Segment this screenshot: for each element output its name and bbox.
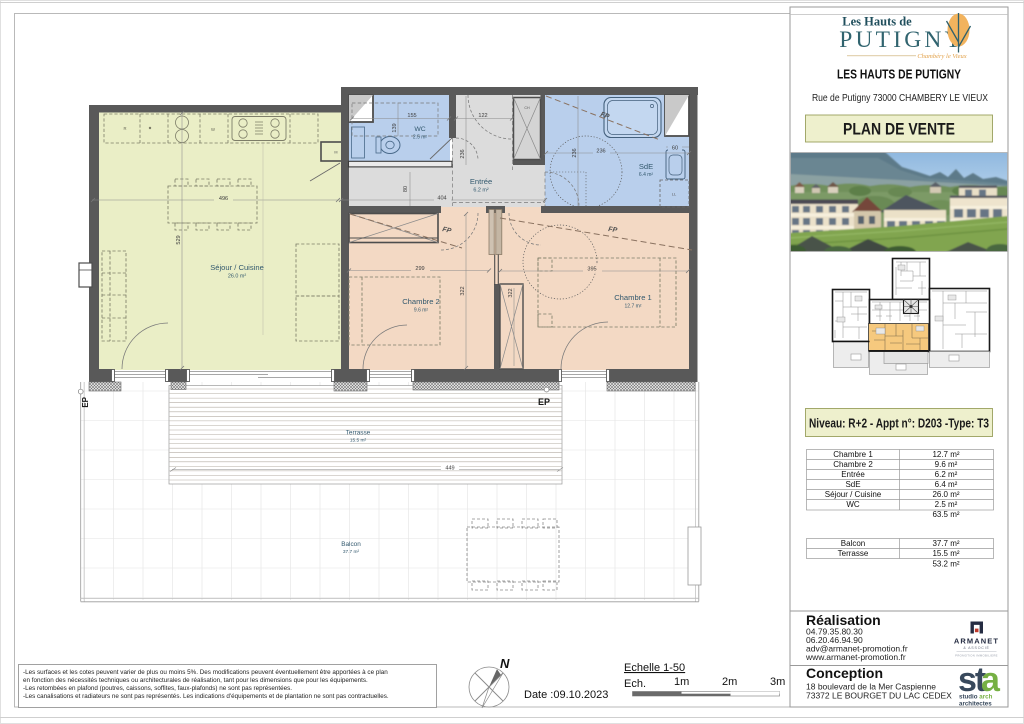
svg-text:60: 60 [672, 145, 678, 151]
svg-text:Balcon: Balcon [341, 541, 361, 548]
svg-text:architectes: architectes [959, 701, 992, 708]
svg-text:R: R [123, 126, 126, 131]
svg-text:-Les retombées en plafond (pou: -Les retombées en plafond (poutres, cais… [23, 685, 292, 692]
svg-text:26.0 m²: 26.0 m² [932, 490, 959, 499]
svg-text:Chambre 1: Chambre 1 [833, 450, 873, 459]
svg-text:EP: EP [538, 397, 550, 407]
svg-text:& ASSOCIÉ: & ASSOCIÉ [963, 645, 989, 650]
svg-text:6.2 m²: 6.2 m² [473, 188, 488, 194]
svg-text:139: 139 [392, 123, 398, 132]
svg-text:Niveau: R+2 - Appt n°: D203 -: Niveau: R+2 - Appt n°: D203 -Type: T3 [809, 417, 989, 431]
svg-text:PLAN DE VENTE: PLAN DE VENTE [843, 120, 955, 139]
svg-text:-Les canalisations et radiateu: -Les canalisations et radiateurs ne sont… [23, 693, 389, 700]
svg-text:Entrée: Entrée [470, 177, 492, 186]
svg-text:6.4 m²: 6.4 m² [639, 172, 654, 178]
svg-text:Chambre 2: Chambre 2 [833, 460, 873, 469]
svg-text:395: 395 [587, 267, 596, 273]
svg-text:404: 404 [437, 195, 446, 201]
svg-text:WC: WC [846, 500, 860, 509]
svg-text:Terrasse: Terrasse [346, 430, 371, 437]
svg-text:80: 80 [403, 186, 409, 192]
svg-text:1m: 1m [674, 676, 689, 688]
svg-text:WC: WC [414, 126, 425, 133]
svg-text:LL: LL [672, 192, 677, 197]
svg-text:449: 449 [445, 465, 454, 471]
svg-text:3m: 3m [770, 676, 785, 688]
svg-text:2m: 2m [722, 676, 737, 688]
svg-text:2.5 m²: 2.5 m² [935, 500, 958, 509]
svg-text:ARMANET: ARMANET [954, 637, 999, 646]
svg-text:W: W [211, 127, 215, 132]
svg-text:Rue de Putigny 73000 CHAMBERY: Rue de Putigny 73000 CHAMBERY LE VIEUX [812, 92, 988, 104]
svg-text:SdE: SdE [845, 480, 860, 489]
svg-text:Entrée: Entrée [841, 470, 865, 479]
svg-text:236: 236 [572, 148, 578, 157]
svg-text:Séjour / Cuisine: Séjour / Cuisine [210, 263, 264, 272]
svg-text:Balcon: Balcon [841, 539, 865, 548]
svg-text:155: 155 [407, 113, 416, 119]
svg-text:529: 529 [176, 235, 182, 244]
svg-text:Conception: Conception [806, 665, 883, 681]
svg-text:122: 122 [478, 113, 487, 119]
svg-text:26.0 m²: 26.0 m² [228, 274, 246, 280]
svg-text:12.7 m²: 12.7 m² [625, 304, 642, 310]
svg-text:LES HAUTS DE PUTIGNY: LES HAUTS DE PUTIGNY [837, 68, 962, 82]
svg-text:M: M [334, 151, 337, 155]
svg-text:Chambéry le Vieux: Chambéry le Vieux [917, 53, 966, 60]
svg-text:CH: CH [524, 106, 530, 110]
svg-text:Date :09.10.2023: Date :09.10.2023 [524, 689, 608, 701]
svg-text:9.6 m²: 9.6 m² [414, 308, 429, 314]
svg-text:73372 LE BOURGET DU LAC CEDEX: 73372 LE BOURGET DU LAC CEDEX [806, 691, 952, 701]
svg-text:Echelle 1-50: Echelle 1-50 [624, 662, 685, 674]
svg-text:EP: EP [81, 396, 90, 407]
svg-text:SdE: SdE [639, 162, 653, 171]
svg-text:322: 322 [508, 288, 514, 297]
svg-text:236: 236 [460, 149, 466, 158]
svg-text:N: N [500, 656, 510, 671]
svg-text:PUTIGNY: PUTIGNY [839, 27, 965, 53]
svg-text:Séjour / Cuisine: Séjour / Cuisine [825, 490, 882, 499]
svg-text:12.7 m²: 12.7 m² [932, 450, 959, 459]
svg-text:37.7 m²: 37.7 m² [343, 549, 360, 555]
svg-text:en fonction des nécessités tec: en fonction des nécessités techniques ou… [23, 677, 368, 684]
svg-text:2.5 m²: 2.5 m² [413, 135, 428, 141]
svg-text:496: 496 [219, 196, 228, 202]
svg-text:Chambre 2: Chambre 2 [402, 297, 440, 306]
svg-text:www.armanet-promotion.fr: www.armanet-promotion.fr [805, 652, 906, 662]
svg-text:322: 322 [460, 286, 466, 295]
svg-text:63.5 m²: 63.5 m² [932, 510, 959, 519]
svg-text:FP: FP [608, 226, 618, 234]
svg-text:15.5 m²: 15.5 m² [932, 549, 959, 558]
svg-text:15.5 m²: 15.5 m² [350, 438, 367, 444]
svg-text:53.2 m²: 53.2 m² [932, 560, 959, 569]
svg-text:studio arch: studio arch [959, 694, 993, 701]
svg-text:Chambre 1: Chambre 1 [614, 293, 652, 302]
svg-text:6.2 m²: 6.2 m² [935, 470, 958, 479]
svg-text:6.4 m²: 6.4 m² [935, 480, 958, 489]
svg-text:37.7 m²: 37.7 m² [932, 539, 959, 548]
svg-text:PROMOTION IMMOBILIERE: PROMOTION IMMOBILIERE [955, 654, 998, 658]
svg-text:-Les surfaces et les cotes peu: -Les surfaces et les cotes peuvent varie… [23, 669, 388, 676]
svg-text:236: 236 [596, 148, 605, 154]
svg-text:Ech.: Ech. [624, 678, 646, 690]
svg-text:9.6 m²: 9.6 m² [935, 460, 958, 469]
svg-text:299: 299 [415, 266, 424, 272]
svg-text:Terrasse: Terrasse [838, 549, 869, 558]
